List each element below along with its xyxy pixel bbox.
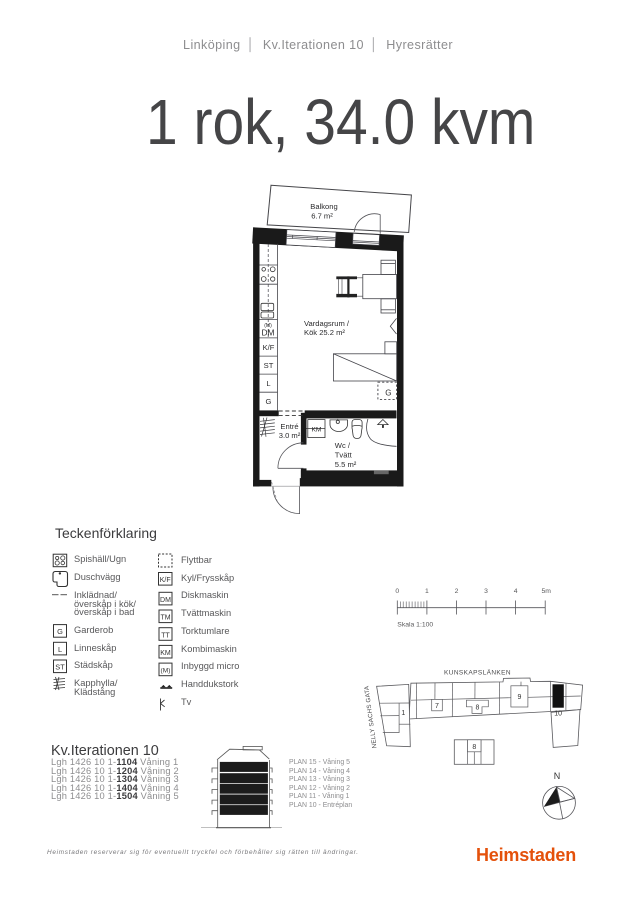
svg-text:8: 8 — [472, 744, 476, 751]
svg-text:Entré: Entré — [280, 422, 298, 431]
svg-text:Tvätt: Tvätt — [335, 451, 353, 460]
svg-text:NELLY SACHS GATA: NELLY SACHS GATA — [363, 685, 378, 749]
svg-text:ST: ST — [55, 663, 65, 672]
svg-text:Skala 1:100: Skala 1:100 — [397, 622, 433, 629]
svg-text:2: 2 — [455, 588, 459, 595]
svg-text:DM: DM — [160, 597, 171, 604]
svg-text:KM: KM — [160, 650, 171, 657]
svg-text:G: G — [266, 397, 272, 406]
svg-text:K/F: K/F — [263, 343, 275, 352]
svg-text:TT: TT — [161, 632, 170, 639]
svg-text:K/F: K/F — [160, 577, 171, 584]
svg-text:8: 8 — [475, 705, 479, 712]
svg-text:TM: TM — [160, 615, 170, 622]
svg-text:10: 10 — [554, 710, 562, 717]
svg-text:Kök 25.2 m²: Kök 25.2 m² — [304, 328, 345, 337]
svg-text:9: 9 — [517, 694, 521, 701]
svg-text:1: 1 — [401, 710, 405, 717]
svg-text:3: 3 — [484, 588, 488, 595]
svg-text:N: N — [554, 771, 561, 781]
svg-text:G: G — [57, 627, 63, 636]
svg-text:G: G — [385, 389, 391, 398]
svg-text:Balkong: Balkong — [310, 202, 337, 211]
svg-text:6.7 m²: 6.7 m² — [311, 212, 333, 221]
svg-text:(M): (M) — [161, 668, 171, 675]
svg-text:3.0 m²: 3.0 m² — [279, 431, 301, 440]
svg-text:5m: 5m — [541, 588, 551, 595]
svg-text:Wc /: Wc / — [335, 441, 351, 450]
svg-text:L: L — [266, 379, 270, 388]
svg-text:5.5 m²: 5.5 m² — [335, 460, 357, 469]
svg-text:4: 4 — [514, 588, 518, 595]
svg-text:KUNSKAPSLÄNKEN: KUNSKAPSLÄNKEN — [444, 669, 511, 677]
svg-text:Vardagsrum /: Vardagsrum / — [304, 319, 350, 328]
svg-text:KM: KM — [311, 426, 321, 433]
svg-text:DM: DM — [261, 328, 274, 338]
svg-text:1: 1 — [425, 588, 429, 595]
svg-text:0: 0 — [395, 588, 399, 595]
svg-text:7: 7 — [435, 703, 439, 710]
svg-text:L: L — [58, 645, 62, 654]
svg-text:ST: ST — [264, 361, 274, 370]
